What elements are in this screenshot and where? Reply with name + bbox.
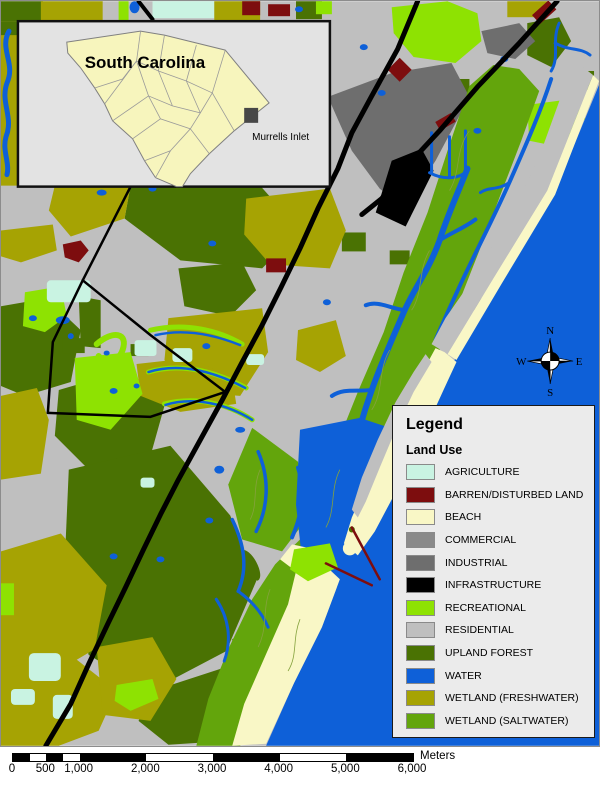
locator-inset: South Carolina Murrells Inlet <box>18 21 330 186</box>
legend-item-label: INFRASTRUCTURE <box>445 579 541 591</box>
scale-bar-segment <box>346 754 413 761</box>
legend-swatch <box>406 600 435 616</box>
legend-item: COMMERCIAL <box>406 529 594 552</box>
legend-item: WATER <box>406 664 594 687</box>
scale-unit-label: Meters <box>420 750 455 762</box>
scale-tick-label: 1,000 <box>64 763 93 775</box>
scale-tick-label: 5,000 <box>331 763 360 775</box>
scale-tick-label: 500 <box>36 763 55 775</box>
scale-bar-segment <box>146 754 213 761</box>
legend-item: AGRICULTURE <box>406 461 594 484</box>
legend-swatch <box>406 645 435 661</box>
murrells-inlet-marker <box>244 108 258 123</box>
legend-swatch <box>406 555 435 571</box>
legend-subtitle: Land Use <box>406 443 594 457</box>
legend-item-label: WETLAND (SALTWATER) <box>445 715 568 727</box>
legend-item: INDUSTRIAL <box>406 551 594 574</box>
scale-tick-label: 4,000 <box>264 763 293 775</box>
map-document: N E S W <box>0 0 600 785</box>
legend-item: UPLAND FOREST <box>406 642 594 665</box>
scale-bar-segment <box>280 754 347 761</box>
legend-item: WETLAND (FRESHWATER) <box>406 687 594 710</box>
inset-title: South Carolina <box>85 53 206 72</box>
legend-swatch <box>406 532 435 548</box>
legend-swatch <box>406 668 435 684</box>
scale-bar-labels: 05001,0002,0003,0004,0005,0006,000 <box>12 763 432 779</box>
scale-tick-label: 0 <box>9 763 15 775</box>
scale-bar-segment <box>63 754 80 761</box>
legend-item: BEACH <box>406 506 594 529</box>
legend-swatch <box>406 487 435 503</box>
compass-s: S <box>547 387 553 399</box>
scale-bar-segment <box>213 754 280 761</box>
legend-item-label: AGRICULTURE <box>445 466 519 478</box>
legend-item-label: RESIDENTIAL <box>445 624 514 636</box>
legend-item-label: RECREATIONAL <box>445 602 526 614</box>
legend-item: RESIDENTIAL <box>406 619 594 642</box>
legend-item-label: WATER <box>445 670 482 682</box>
legend-swatch <box>406 577 435 593</box>
scale-bar-strip: 05001,0002,0003,0004,0005,0006,000 Meter… <box>0 747 600 785</box>
left-edge-landuse <box>1 21 18 185</box>
scale-bar-segment <box>13 754 30 761</box>
scale-tick-label: 2,000 <box>131 763 160 775</box>
scale-tick-label: 6,000 <box>398 763 427 775</box>
legend-item: RECREATIONAL <box>406 597 594 620</box>
compass-n: N <box>546 325 554 337</box>
inset-marker-label: Murrells Inlet <box>252 132 309 143</box>
legend-swatch <box>406 622 435 638</box>
compass-w: W <box>516 356 527 368</box>
legend-item-label: UPLAND FOREST <box>445 647 533 659</box>
legend-swatch <box>406 713 435 729</box>
legend-item: WETLAND (SALTWATER) <box>406 710 594 733</box>
scale-bar-segment <box>30 754 47 761</box>
scale-bar-segment <box>80 754 147 761</box>
compass-e: E <box>576 356 583 368</box>
legend-title: Legend <box>406 416 594 434</box>
legend-item-label: BARREN/DISTURBED LAND <box>445 489 583 501</box>
legend-item: INFRASTRUCTURE <box>406 574 594 597</box>
scale-tick-label: 3,000 <box>198 763 227 775</box>
legend-swatch <box>406 690 435 706</box>
legend-box: Legend Land Use AGRICULTUREBARREN/DISTUR… <box>392 405 595 738</box>
legend-item-label: WETLAND (FRESHWATER) <box>445 692 579 704</box>
legend-item-label: BEACH <box>445 511 481 523</box>
legend-swatch <box>406 464 435 480</box>
legend-swatch <box>406 509 435 525</box>
legend-items: AGRICULTUREBARREN/DISTURBED LANDBEACHCOM… <box>406 461 594 732</box>
legend-item: BARREN/DISTURBED LAND <box>406 484 594 507</box>
scale-bar-segments <box>12 753 414 762</box>
legend-item-label: INDUSTRIAL <box>445 557 507 569</box>
scale-bar-segment <box>46 754 63 761</box>
legend-item-label: COMMERCIAL <box>445 534 516 546</box>
